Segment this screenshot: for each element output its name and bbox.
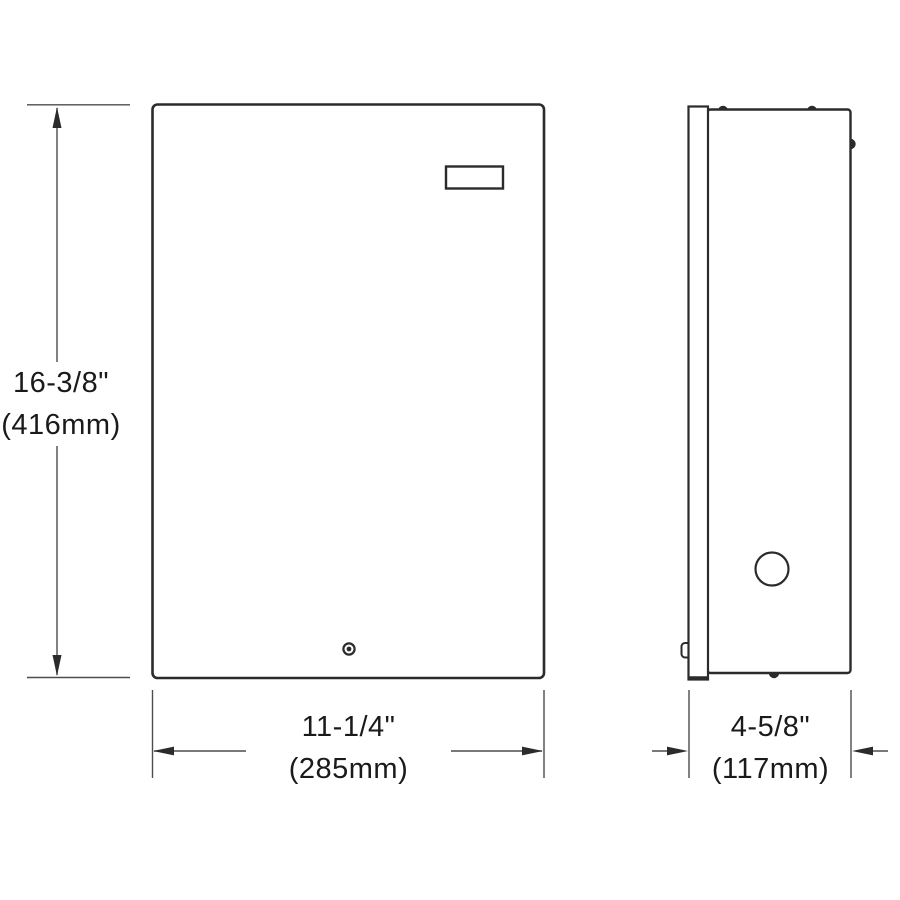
width-arrow-left-icon — [153, 747, 174, 756]
side-body-outline — [708, 110, 851, 674]
depth-arrow-right-icon — [667, 747, 688, 756]
depth-mm-text: (117mm) — [692, 748, 849, 790]
front-view — [153, 105, 545, 679]
width-mm-text: (285mm) — [246, 748, 451, 790]
height-arrow-down-icon — [53, 655, 62, 676]
height-arrow-up-icon — [53, 107, 62, 128]
width-dimension-label: 11-1/4" (285mm) — [246, 706, 451, 790]
height-inches-text: 16-3/8" — [0, 362, 122, 404]
indicator-screw-center — [347, 647, 352, 652]
dimension-drawing-canvas: 16-3/8" (416mm) 11-1/4" (285mm) 4-5/8" (… — [0, 0, 900, 900]
depth-dimension-label: 4-5/8" (117mm) — [692, 706, 849, 790]
side-flange-outline — [689, 107, 709, 680]
width-inches-text: 11-1/4" — [246, 706, 451, 748]
side-view — [682, 106, 856, 680]
front-panel-outline — [153, 105, 545, 679]
height-mm-text: (416mm) — [0, 404, 122, 446]
knockout-hole — [756, 553, 789, 586]
width-arrow-right-icon — [522, 747, 543, 756]
height-dimension-label: 16-3/8" (416mm) — [0, 362, 122, 446]
depth-arrow-left-icon — [852, 747, 873, 756]
depth-inches-text: 4-5/8" — [692, 706, 849, 748]
spec-label-plate — [446, 167, 503, 189]
